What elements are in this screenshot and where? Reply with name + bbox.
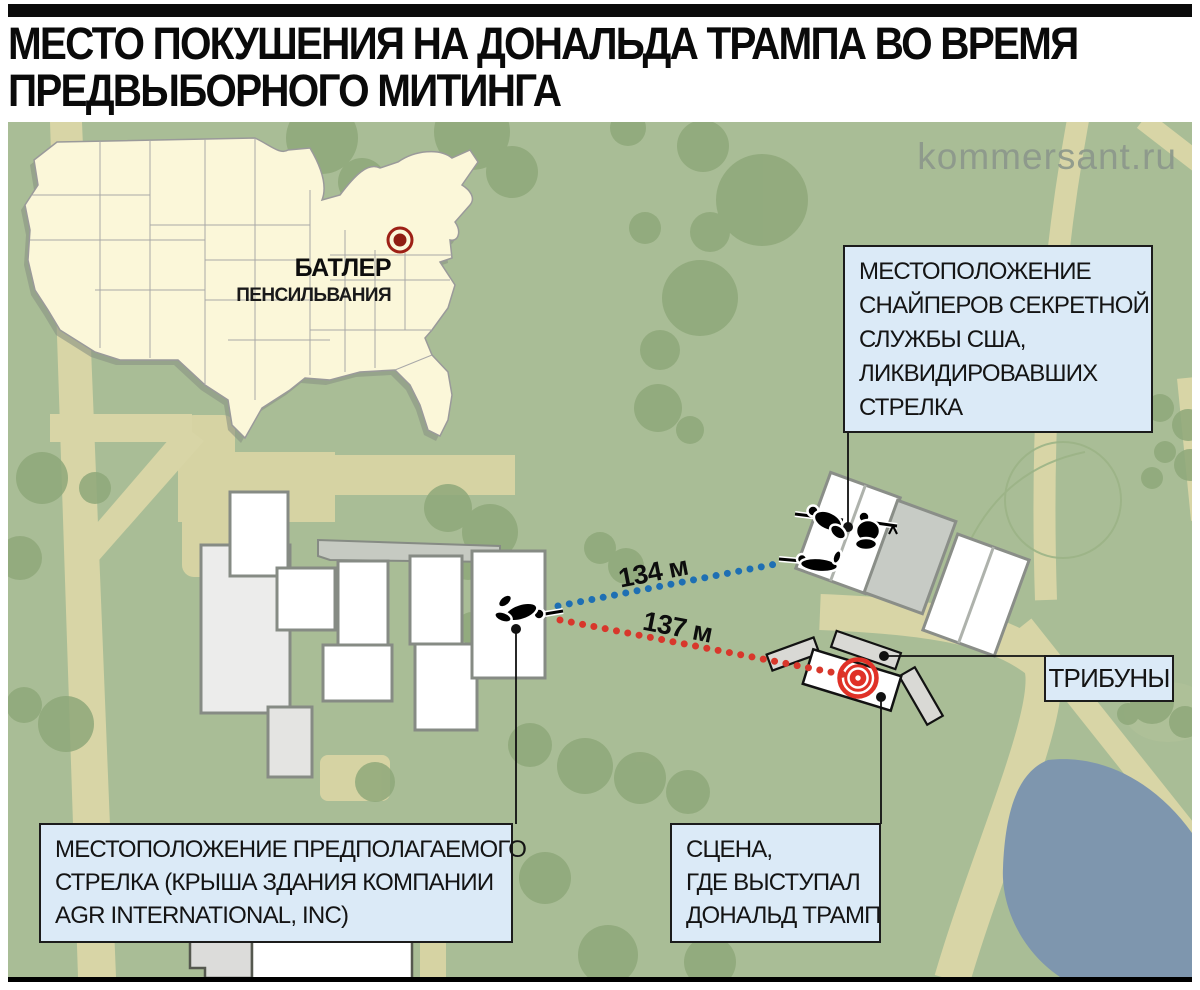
page-title: МЕСТО ПОКУШЕНИЯ НА ДОНАЛЬДА ТРАМПА ВО ВР… xyxy=(8,20,1178,114)
infographic-page: МЕСТО ПОКУШЕНИЯ НА ДОНАЛЬДА ТРАМПА ВО ВР… xyxy=(0,0,1200,990)
inset-city-label: БАТЛЕР xyxy=(295,254,391,282)
inset-region-label: ПЕНСИЛЬВАНИЯ xyxy=(236,285,391,306)
shooter-callout-box: МЕСТОПОЛОЖЕНИЕ ПРЕДПОЛАГАЕМОГО СТРЕЛКА (… xyxy=(39,823,513,943)
map-area: kommersant.ru БАТЛЕР ПЕНСИЛЬВАНИЯ 134 м … xyxy=(8,122,1192,982)
stage-callout-line: ГДЕ ВЫСТУПАЛ xyxy=(686,866,865,899)
bullseye-target-icon xyxy=(840,660,877,697)
tribunes-callout-label: ТРИБУНЫ xyxy=(1048,663,1169,694)
stage-callout-line: СЦЕНА, xyxy=(686,833,865,866)
title-line-1: МЕСТО ПОКУШЕНИЯ НА ДОНАЛЬДА ТРАМПА ВО ВР… xyxy=(8,18,1077,69)
top-black-bar xyxy=(8,4,1192,17)
tribunes-callout-box: ТРИБУНЫ xyxy=(1044,655,1174,702)
snipers-callout-line: СЛУЖБЫ США, xyxy=(859,323,1137,357)
shooter-callout-line: МЕСТОПОЛОЖЕНИЕ ПРЕДПОЛАГАЕМОГО xyxy=(55,833,497,866)
bullseye-marker-icon xyxy=(386,226,414,254)
snipers-callout-line: ЛИКВИДИРОВАВШИХ xyxy=(859,357,1137,391)
snipers-callout-line: СТРЕЛКА xyxy=(859,391,1137,425)
title-line-2: ПРЕДВЫБОРНОГО МИТИНГА xyxy=(8,65,560,116)
snipers-callout-line: СНАЙПЕРОВ СЕКРЕТНОЙ xyxy=(859,289,1137,323)
watermark: kommersant.ru xyxy=(917,136,1177,177)
bottom-buildings xyxy=(190,937,412,977)
snipers-callout-box: МЕСТОПОЛОЖЕНИЕ СНАЙПЕРОВ СЕКРЕТНОЙ СЛУЖБ… xyxy=(843,245,1153,433)
shooter-callout-line: СТРЕЛКА (КРЫША ЗДАНИЯ КОМПАНИИ xyxy=(55,866,497,899)
snipers-callout-line: МЕСТОПОЛОЖЕНИЕ xyxy=(859,255,1137,289)
stage-callout-line: ДОНАЛЬД ТРАМП xyxy=(686,899,865,932)
shooter-callout-line: AGR INTERNATIONAL, INC) xyxy=(55,899,497,932)
stage-callout-box: СЦЕНА, ГДЕ ВЫСТУПАЛ ДОНАЛЬД ТРАМП xyxy=(670,823,881,943)
